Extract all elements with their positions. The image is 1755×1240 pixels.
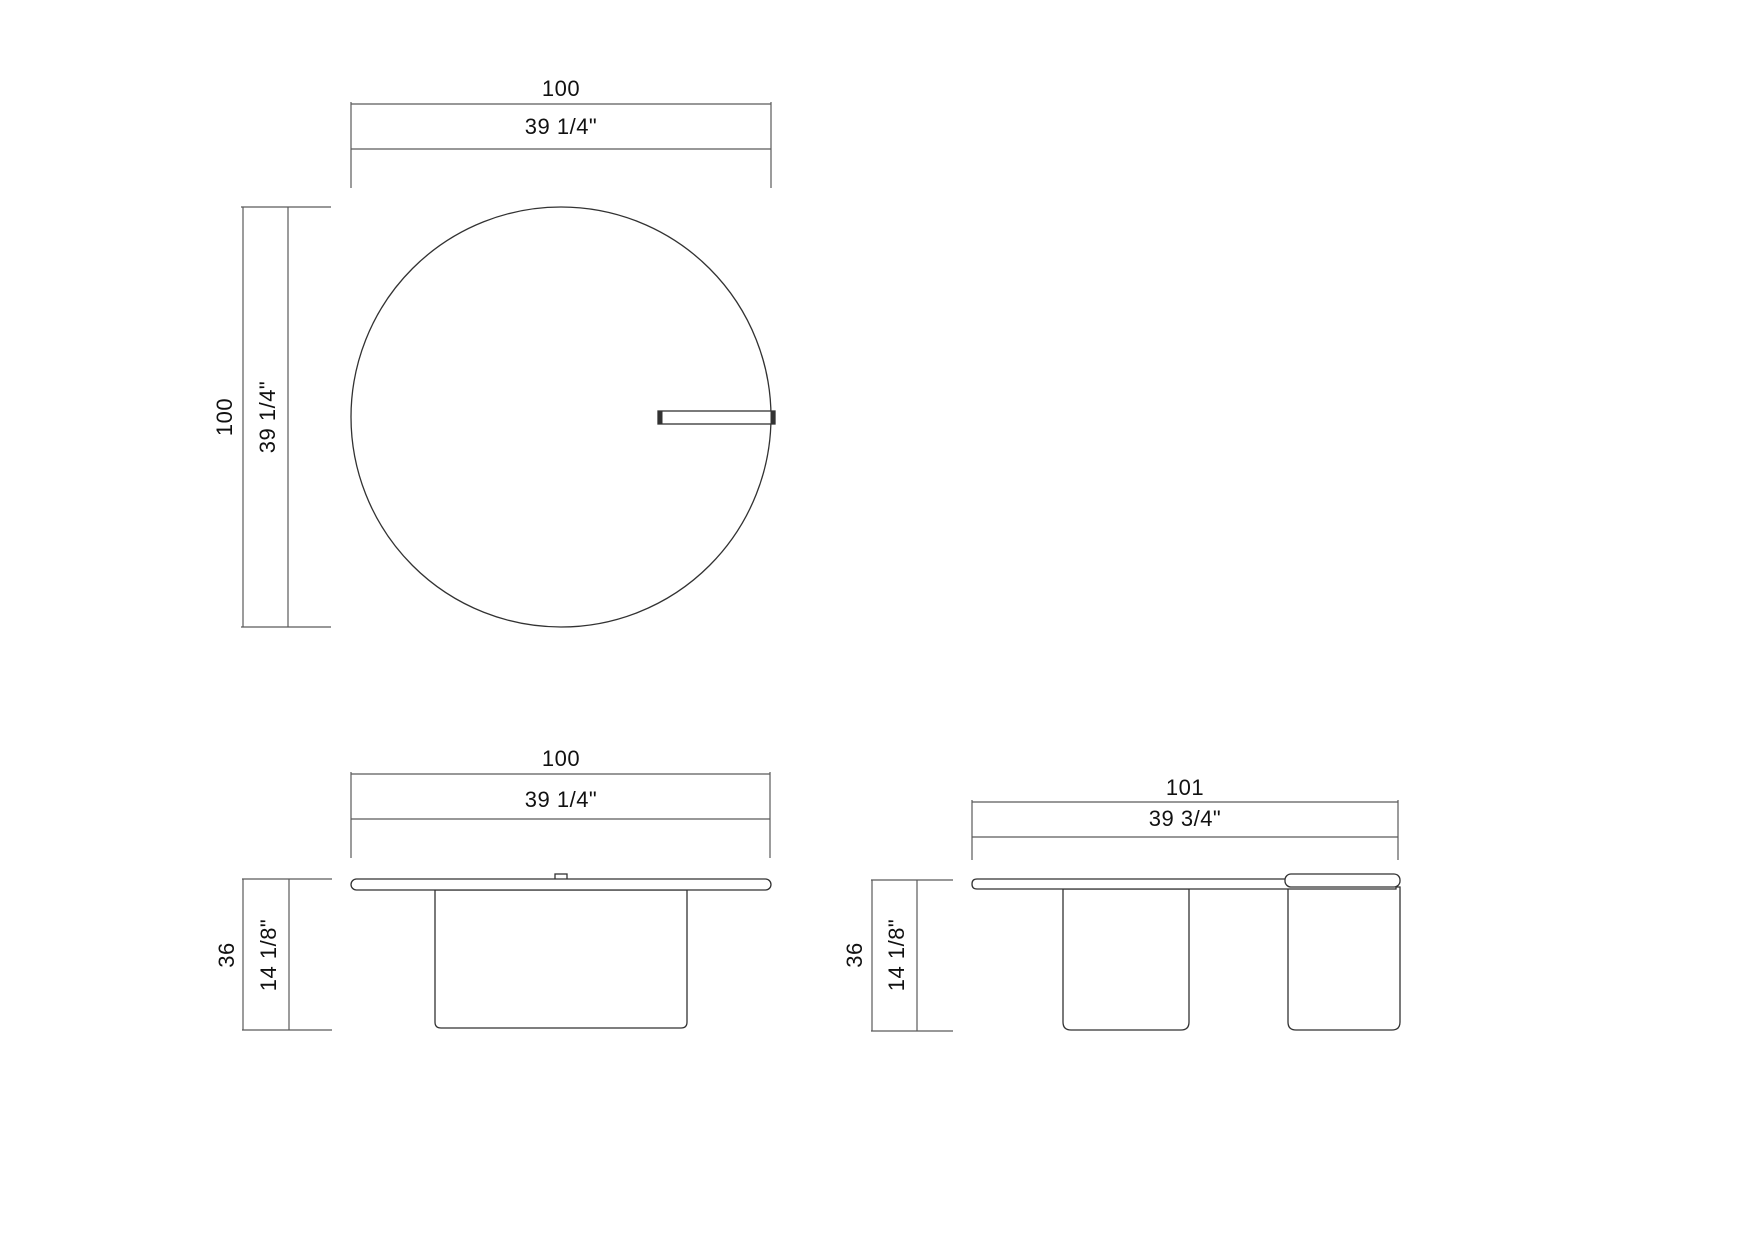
side-view-height-imperial-label: 14 1/8": [886, 919, 908, 991]
top-view-width-metric-label: 100: [542, 78, 580, 100]
front-tabletop-slab: [351, 879, 771, 890]
side-left-leg: [1063, 889, 1189, 1030]
side-right-leg: [1288, 887, 1400, 1030]
top-view-height-metric-label: 100: [214, 398, 236, 436]
side-handle-detail: [1285, 874, 1400, 887]
top-view-height-imperial-label: 39 1/4": [257, 381, 279, 453]
side-view: [871, 800, 1400, 1031]
front-view-width-imperial-label: 39 1/4": [525, 789, 597, 811]
front-view-height-imperial-label: 14 1/8": [258, 919, 280, 991]
side-view-height-metric-label: 36: [844, 942, 866, 967]
front-view-height-metric-label: 36: [216, 942, 238, 967]
slot-end-cap-left: [658, 411, 663, 424]
top-view-width-imperial-label: 39 1/4": [525, 116, 597, 138]
tabletop-slot-detail: [658, 411, 775, 424]
front-pedestal-base: [435, 890, 687, 1028]
side-view-width-metric-label: 101: [1166, 777, 1204, 799]
front-view: [242, 772, 771, 1030]
top-view: [241, 102, 775, 627]
slot-end-cap-right: [771, 411, 776, 424]
dimension-drawing-sheet: 100 39 1/4" 100 39 1/4" 100 39 1/4" 36 1…: [0, 0, 1755, 1240]
front-view-width-metric-label: 100: [542, 748, 580, 770]
technical-drawing-canvas: [0, 0, 1755, 1240]
side-view-width-imperial-label: 39 3/4": [1149, 808, 1221, 830]
